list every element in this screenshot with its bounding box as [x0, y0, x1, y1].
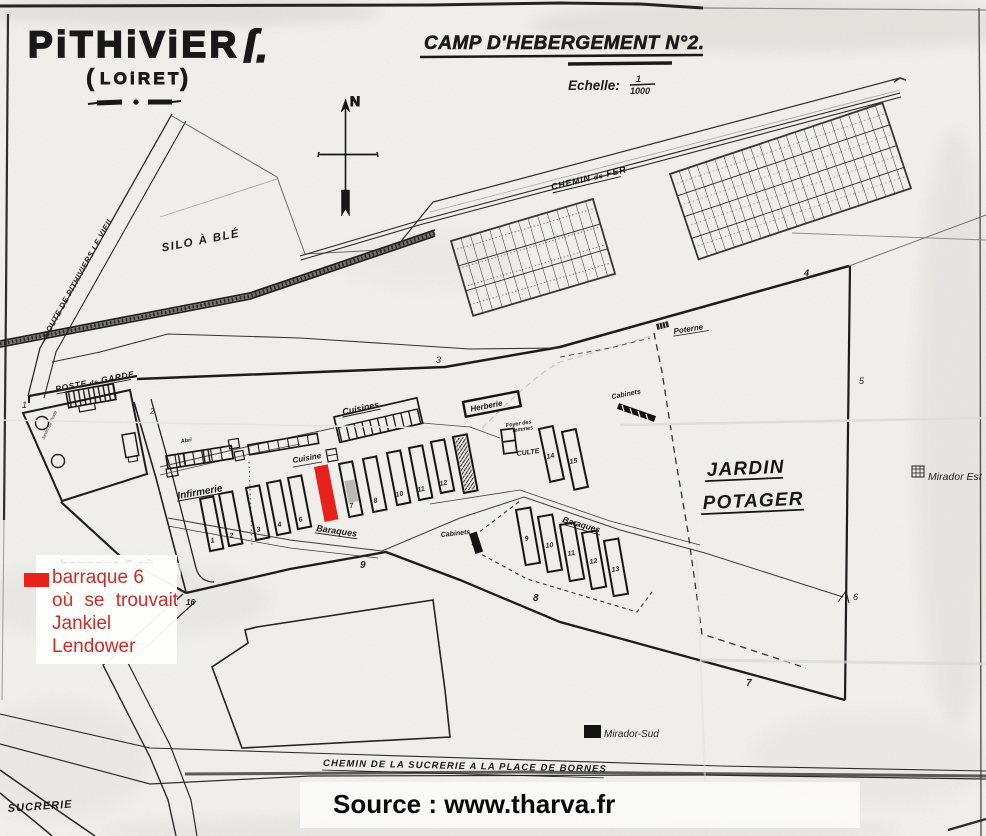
- svg-text:9: 9: [360, 560, 366, 571]
- svg-text:Mirador-Sud: Mirador-Sud: [604, 729, 659, 740]
- svg-text:N: N: [350, 93, 360, 109]
- svg-text:1: 1: [22, 400, 27, 410]
- svg-text:1000: 1000: [630, 86, 650, 96]
- svg-text:11: 11: [417, 486, 426, 494]
- svg-text:): ): [180, 64, 188, 92]
- svg-text:PiTHiViER: PiTHiViER: [28, 24, 240, 65]
- svg-text:LOiRET: LOiRET: [100, 69, 182, 88]
- svg-text:(: (: [86, 64, 95, 92]
- svg-text:4: 4: [803, 268, 809, 278]
- svg-text:10: 10: [395, 491, 404, 499]
- svg-text:3: 3: [436, 355, 441, 365]
- svg-text:10: 10: [545, 542, 554, 550]
- svg-text:Jankiel: Jankiel: [52, 613, 111, 634]
- svg-text:6: 6: [853, 592, 858, 602]
- svg-text:11: 11: [567, 550, 575, 558]
- svg-text:barraque 6: barraque 6: [52, 567, 144, 588]
- svg-text:Mirador Est: Mirador Est: [928, 471, 983, 483]
- svg-text:Source : www.tharva.fr: Source : www.tharva.fr: [333, 789, 615, 819]
- svg-text:où se trouvait: où se trouvait: [52, 590, 179, 611]
- svg-text:14: 14: [546, 453, 555, 461]
- svg-text:2: 2: [149, 407, 155, 416]
- svg-text:ſ.: ſ.: [243, 20, 269, 72]
- svg-text:12: 12: [589, 558, 598, 566]
- svg-text:CAMP D'HEBERGEMENT N°2.: CAMP D'HEBERGEMENT N°2.: [424, 33, 705, 54]
- svg-text:8: 8: [533, 593, 539, 604]
- svg-text:Lendower: Lendower: [52, 636, 136, 657]
- svg-text:12: 12: [439, 480, 448, 488]
- svg-text:7: 7: [746, 678, 752, 689]
- svg-text:Echelle:: Echelle:: [568, 78, 620, 93]
- svg-text:15: 15: [569, 458, 578, 466]
- svg-text:1: 1: [636, 74, 641, 84]
- svg-text:13: 13: [611, 566, 620, 574]
